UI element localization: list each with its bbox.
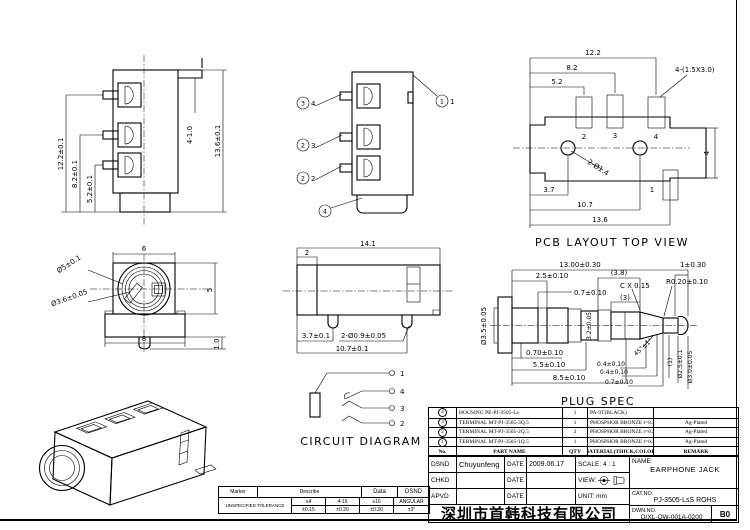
circuit-terminals: 1 4 3 2 bbox=[390, 370, 406, 428]
part-name: TERMINAL MT-PJ-3505-3Q.5 bbox=[456, 418, 562, 428]
pin-4: 4 bbox=[311, 100, 316, 108]
circled-4: 4 bbox=[323, 208, 327, 216]
dim-12-2: 12.2 bbox=[585, 49, 601, 57]
dim-3-7: 3.7±0.1 bbox=[302, 332, 330, 340]
dim-13-6: 13.6±0.1 bbox=[214, 125, 222, 158]
part-name: HOUSING PE-PJ-3505-Ls bbox=[456, 408, 562, 418]
catno-cell: CAT.NO. PJ-3505-LsS ROHS bbox=[629, 488, 738, 505]
chkd-date bbox=[526, 472, 575, 488]
hole-note: 2-Ø1.4 bbox=[586, 158, 611, 178]
pcb-view-title: PCB LAYOUT TOP VIEW bbox=[535, 236, 689, 249]
dim-5-2: 5.2±0.1 bbox=[86, 175, 94, 203]
part-remark: Ag-Plated bbox=[653, 437, 738, 447]
drawing-sheet: 12.2±0.1 8.2±0.1 5.2±0.1 4-1.0 13.6±0.1 … bbox=[0, 0, 750, 530]
view-cell: VIEW: bbox=[575, 472, 629, 488]
part-name: TERMINAL MT-PJ-3505-2Q.5 bbox=[456, 427, 562, 437]
pad-3: 3 bbox=[613, 132, 617, 140]
part-no-2: 2 bbox=[429, 427, 456, 437]
dim-len: 13.00±0.30 bbox=[559, 261, 601, 269]
part-remark: Ag-Plated bbox=[653, 427, 738, 437]
chkd-value bbox=[456, 472, 504, 488]
pcb-pads bbox=[576, 95, 678, 200]
dim-8: 8 bbox=[142, 335, 146, 343]
date-value: 2009.06.17 bbox=[526, 456, 575, 472]
slot-note: 4-(1.5X3.0) bbox=[675, 66, 715, 74]
part-qty: 1 bbox=[562, 418, 587, 428]
dim-10-7: 10.7±0.1 bbox=[336, 345, 369, 353]
view-label: VIEW: bbox=[578, 477, 596, 484]
circuit-title: CIRCUIT DIAGRAM bbox=[300, 435, 422, 448]
pin-1: 1 bbox=[450, 98, 454, 106]
dim-3-7: 3.7 bbox=[543, 186, 554, 194]
catno-label: CAT.NO. bbox=[632, 491, 653, 497]
dwnno-value: Q/XL-QW-001A-0200 bbox=[632, 514, 711, 521]
pad-1: 1 bbox=[650, 186, 654, 194]
tolerance-table: Marker Describe Data DSND UNSPECIFIED TO… bbox=[218, 486, 430, 514]
circled-1: 1 bbox=[440, 98, 444, 106]
title-block: DSND Chuyunfeng DATE 2009.06.17 SCALE: 4… bbox=[428, 455, 739, 523]
dim-13-6: 13.6 bbox=[592, 216, 608, 224]
dsnd-label: DSND bbox=[429, 456, 456, 472]
dim-07b: 0.7±0.10 bbox=[605, 379, 633, 386]
unit-value: mm bbox=[596, 493, 607, 500]
company-name: 深圳市首韩科技有限公司 bbox=[429, 504, 629, 522]
scale-label: SCALE: bbox=[578, 461, 601, 468]
dim-dia36: Ø3.6±0.05 bbox=[50, 288, 89, 309]
catno-value: PJ-3505-LsS ROHS bbox=[632, 497, 738, 504]
pcb-outline bbox=[530, 117, 706, 181]
terminal-1: 1 bbox=[400, 370, 404, 378]
dim-10-7: 10.7 bbox=[577, 201, 593, 209]
tol-h-1: ≤4 bbox=[291, 497, 325, 505]
product-name: EARPHONE JACK bbox=[632, 465, 738, 474]
tol-v-1: ±0.15 bbox=[291, 505, 325, 513]
part-no-3: 3 bbox=[429, 418, 456, 428]
dim-070: 0.70±0.10 bbox=[526, 349, 563, 357]
date-label-3: DATE bbox=[504, 488, 526, 504]
dim-3: (3) bbox=[620, 294, 630, 302]
circled-2a: 2 bbox=[301, 142, 305, 150]
pad-4: 4 bbox=[654, 133, 659, 141]
dim-8-5: 8.5±0.10 bbox=[553, 374, 586, 382]
pad-2: 2 bbox=[582, 133, 586, 141]
marker-label: Marker bbox=[219, 487, 257, 497]
apvd-label: APVD bbox=[429, 488, 456, 504]
unit-cell: UNIT: mm bbox=[575, 488, 629, 504]
apvd-date bbox=[526, 488, 575, 504]
view-side: 14.1 2 3.7±0.1 2-Ø0.9±0.05 10.7±0.1 bbox=[283, 240, 470, 380]
dim-angle: 45°±1° bbox=[633, 337, 654, 357]
part-material: PHOSPHOR BRONZE t=0.25 bbox=[587, 427, 653, 437]
tol-h-3: ≥16 bbox=[359, 497, 393, 505]
pin-2: 2 bbox=[311, 175, 315, 183]
dim-5: 5 bbox=[206, 288, 214, 292]
plug-profile bbox=[498, 297, 688, 353]
date-label-1: DATE bbox=[504, 456, 526, 472]
unspecified-tolerance-label: UNSPECIFIED TOLERANCE bbox=[219, 497, 291, 513]
dim-14-1: 14.1 bbox=[360, 240, 376, 248]
pin-3: 3 bbox=[311, 142, 315, 150]
part-material: PHOSPHOR BRONZE t=0.25 bbox=[587, 437, 653, 447]
part-remark: Ag-Plated bbox=[653, 418, 738, 428]
dim-6: 6 bbox=[142, 245, 147, 253]
view-pcb-layout: 12.2 8.2 5.2 4-(1.5X3.0) 2-Ø1.4 4 3.7 10… bbox=[455, 35, 740, 255]
dim-5-5: 5.5±0.10 bbox=[533, 361, 566, 369]
dim-8-2: 8.2±0.1 bbox=[71, 160, 79, 188]
dim-1-0: 1.0 bbox=[213, 338, 221, 349]
scale-cell: SCALE: 4 : 1 bbox=[575, 456, 629, 472]
terminal-2: 2 bbox=[400, 420, 404, 428]
projection-icon bbox=[598, 475, 628, 486]
part-material: PHOSPHOR BRONZE t=0.25 bbox=[587, 418, 653, 428]
pin-view-outline bbox=[340, 72, 413, 213]
dim-dia30: Ø3.0±0.05 bbox=[687, 350, 694, 383]
describe-label: Describe bbox=[257, 487, 361, 497]
dim-dia5: Ø5±0.1 bbox=[55, 254, 82, 275]
dim-holes: 2-Ø0.9±0.05 bbox=[341, 332, 386, 340]
iso-body bbox=[40, 401, 217, 505]
dim-0-7-top: 0.7±0.10 bbox=[574, 289, 607, 297]
dim-radius: R0.20±0.10 bbox=[666, 278, 708, 286]
dim-chamfer: C X 0.15 bbox=[620, 282, 650, 290]
view-plug-spec: 13.00±0.30 2.5±0.10 0.7±0.10 (3.8) C X 0… bbox=[450, 250, 740, 415]
terminal-3: 3 bbox=[400, 405, 404, 413]
part-remark bbox=[653, 408, 738, 418]
tol-h-2: 4-16 bbox=[325, 497, 359, 505]
dim-5-2: 5.2 bbox=[551, 78, 562, 86]
part-qty: 2 bbox=[562, 427, 587, 437]
side-outline bbox=[297, 265, 440, 328]
part-no-4: 4 bbox=[429, 408, 456, 418]
circled-2b: 2 bbox=[301, 175, 305, 183]
dim-04a: 0.4±0.10 bbox=[597, 361, 625, 368]
view-side-left: 12.2±0.1 8.2±0.1 5.2±0.1 4-1.0 13.6±0.1 bbox=[55, 10, 245, 240]
unit-label: UNIT: bbox=[578, 493, 594, 500]
dim-4: 4 bbox=[703, 150, 711, 155]
dim-dia25: Ø2.5±0.1 bbox=[677, 349, 684, 378]
designer-name: Chuyunfeng bbox=[456, 456, 504, 472]
dsnd-label: DSND bbox=[397, 487, 429, 497]
part-name: TERMINAL MT-PJ-3505-1Q.5 bbox=[456, 437, 562, 447]
view-pin-callouts: 3 4 2 3 2 2 4 1 1 bbox=[285, 50, 460, 250]
circled-3: 3 bbox=[301, 100, 305, 108]
dim-3-2: 3.2±0.05 bbox=[586, 312, 593, 340]
revision-code: B0 bbox=[711, 505, 738, 522]
view-front: 6 8 Ø5±0.1 Ø3.6±0.05 5 1.0 bbox=[30, 240, 255, 380]
pin-leaders bbox=[315, 75, 437, 208]
data-label: Data bbox=[361, 487, 397, 497]
name-label: NAME: bbox=[632, 458, 738, 465]
circuit-lines bbox=[310, 373, 389, 423]
date-label-2: DATE bbox=[504, 472, 526, 488]
tol-v-4: ±3° bbox=[393, 505, 429, 513]
dim-3-8: (3.8) bbox=[611, 269, 628, 277]
dim-1: 1±0.30 bbox=[680, 261, 706, 269]
part-qty: 1 bbox=[562, 437, 587, 447]
dim-12-2: 12.2±0.1 bbox=[57, 138, 65, 171]
dim-8-2: 8.2 bbox=[566, 64, 577, 72]
dim-dia35: Ø3.5±0.05 bbox=[480, 307, 488, 345]
view-isometric bbox=[15, 388, 240, 525]
parts-table: 4 HOUSING PE-PJ-3505-Ls 1 PA-9T(BLACK) 3… bbox=[428, 407, 739, 457]
part-material: PA-9T(BLACK) bbox=[587, 408, 653, 418]
terminal-4: 4 bbox=[400, 388, 405, 396]
tol-h-4: ANGULAR bbox=[393, 497, 429, 505]
chkd-label: CHKD bbox=[429, 472, 456, 488]
dim-2: 2 bbox=[305, 249, 309, 257]
scale-value: 4 : 1 bbox=[603, 461, 616, 468]
name-cell: NAME: EARPHONE JACK bbox=[629, 456, 738, 488]
apvd-value bbox=[456, 488, 504, 504]
dim-4-1: 4-1.0 bbox=[186, 126, 194, 144]
dim-p1: (1) bbox=[667, 358, 674, 367]
part-no-1: 1 bbox=[429, 437, 456, 447]
dwnno-cell: DWN.NO. Q/XL-QW-001A-0200 bbox=[629, 505, 711, 522]
tol-v-3: ±0.30 bbox=[359, 505, 393, 513]
tol-v-2: ±0.20 bbox=[325, 505, 359, 513]
part-qty: 1 bbox=[562, 408, 587, 418]
dim-2-5: 2.5±0.10 bbox=[536, 272, 569, 280]
dim-04b: 0.4±0.10 bbox=[600, 369, 628, 376]
